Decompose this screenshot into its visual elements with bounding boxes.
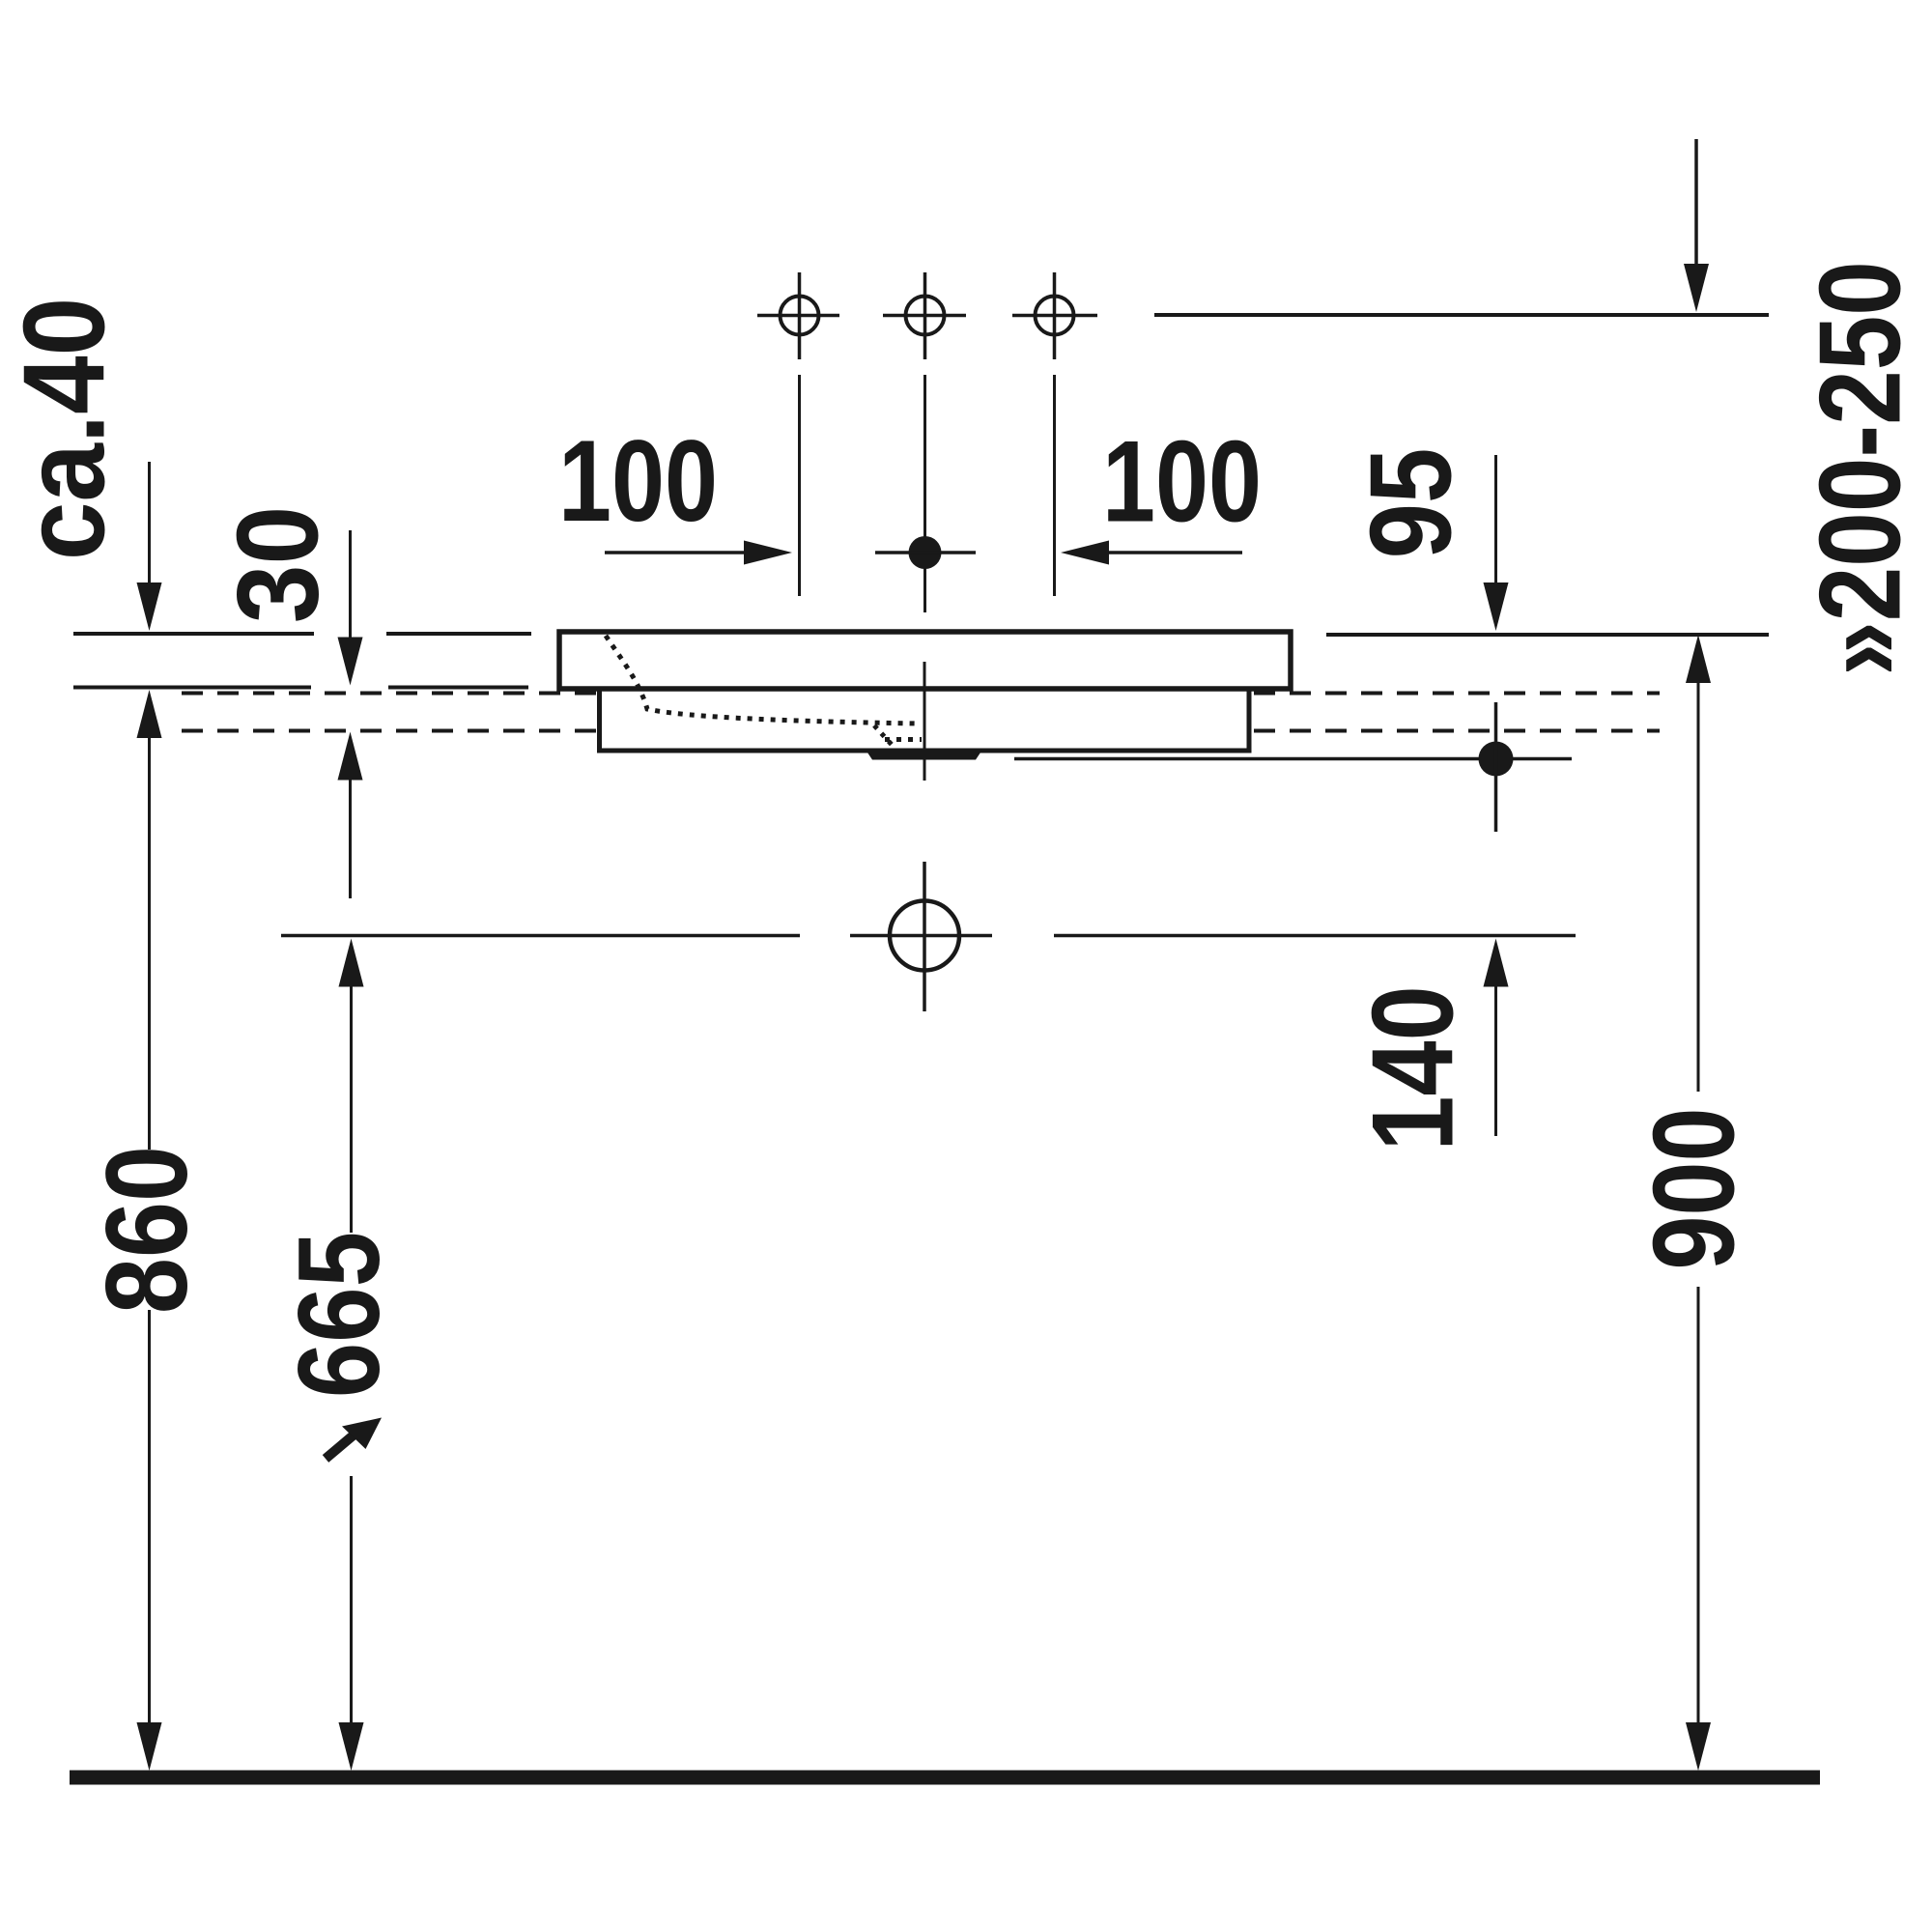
svg-text:100: 100 [558,416,718,546]
svg-text:»200-250: »200-250 [1795,261,1925,675]
svg-text:100: 100 [1102,416,1262,546]
svg-text:30: 30 [213,506,343,623]
svg-text:900: 900 [1630,1107,1758,1269]
svg-text:140: 140 [1348,985,1477,1151]
svg-text:ca.40: ca.40 [0,298,129,560]
svg-text:95: 95 [1346,448,1475,559]
svg-text:665: 665 [273,1232,403,1398]
svg-text:860: 860 [81,1146,211,1314]
